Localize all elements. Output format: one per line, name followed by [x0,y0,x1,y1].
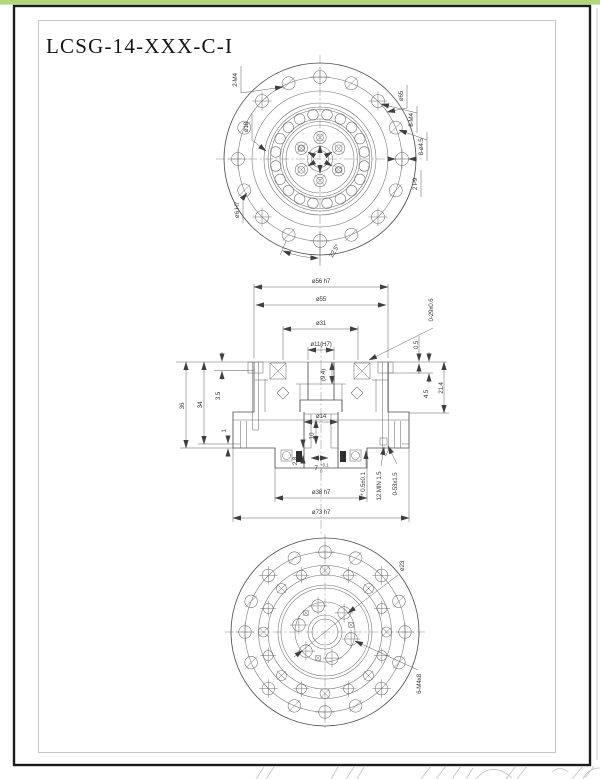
depth-text: 12:MIN 1.5 [376,471,383,500]
label-d6h7-text: ø6 H7 [234,201,241,218]
m4x8-text: 6-M4x8 [416,673,423,693]
drawing-canvas: LCSG-14-XXX-C-I [0,0,600,779]
label-d18-text: ø18 [243,121,250,132]
oring-top-text: 0-29x0.6 [428,298,435,322]
dim-214-text: 21.4 [438,382,445,394]
label-2m4-text: 2-M4 [232,73,239,87]
drawing-title: LCSG-14-XXX-C-I [46,34,233,58]
page: LCSG-14-XXX-C-I [0,0,600,779]
label-d65-text: ø65 [398,90,405,101]
dim-36-text: 36 [179,402,186,409]
dim-45-text: 4.5 [423,389,430,398]
right-seal [340,451,346,462]
label-8d45-text: 8-ø4.5 [418,138,425,156]
oring-bot-text: 0-53x1.5 [392,472,399,496]
label-2p9-text: 2 P9 [412,177,419,190]
dim-10-text: 10 [309,432,316,439]
dim-28-text: 2.8 [292,456,299,465]
dim-94-text: (9.4) [320,369,327,381]
dim-d23-text: ø23 [399,560,406,571]
dim-d11-text: ø11(H7) [310,341,331,348]
dim-gap-text: * 0.5±0.1 [360,472,367,496]
dim-d38-text: ø38 h7 [312,489,331,496]
label-8m4-text: 8-M4 [408,113,415,127]
dim-d31-text: ø31 [316,320,327,327]
dim-d73-text: ø73 h7 [312,509,331,516]
accent-strip [0,0,600,5]
dim-35-text: 3.5 [215,391,222,400]
dim-d55-text: ø55 [316,296,327,303]
dim-34-text: 34 [197,401,204,408]
dim-d14-text: ø14 [316,413,327,420]
dim-d56-text: ø56 h7 [312,278,331,285]
dim-05-text: 0.5 [413,340,420,349]
dim-7-tol-up: +0.1 [320,463,329,468]
